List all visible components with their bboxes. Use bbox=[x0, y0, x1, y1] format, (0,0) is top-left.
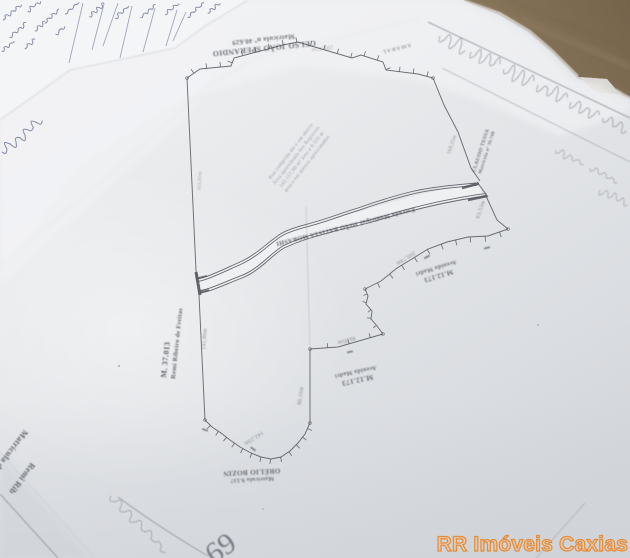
svg-text:303,60m: 303,60m bbox=[197, 171, 203, 191]
svg-text:RR Imóveis Caxias: RR Imóveis Caxias bbox=[437, 533, 628, 556]
